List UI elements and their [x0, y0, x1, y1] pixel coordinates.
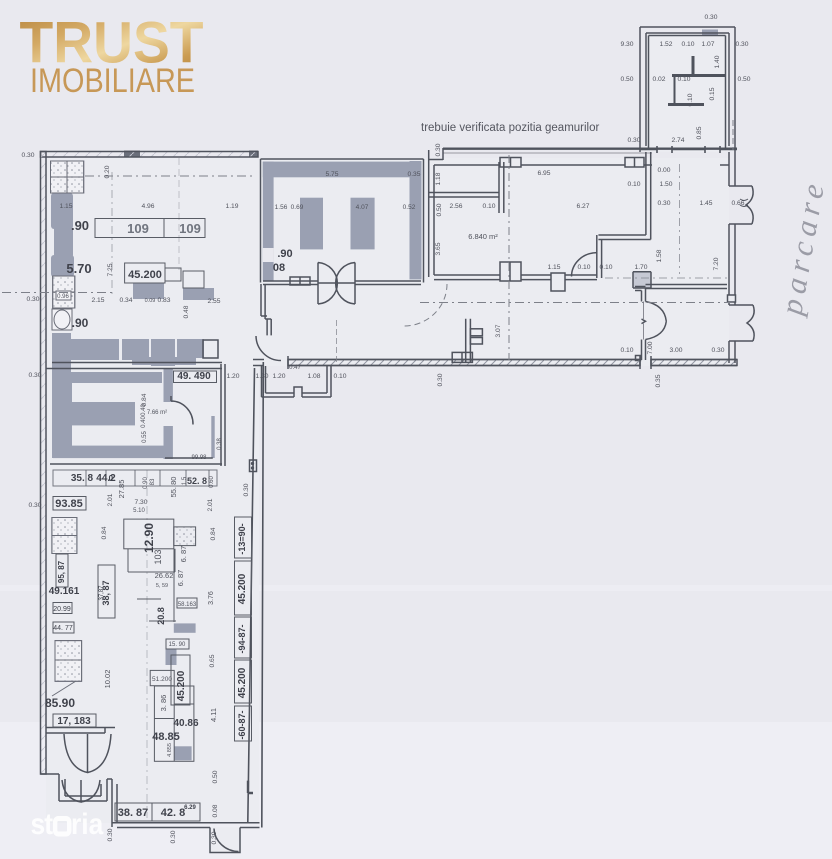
svg-text:0.84: 0.84: [210, 527, 217, 540]
svg-text:0.10: 0.10: [620, 347, 633, 354]
svg-text:12.90: 12.90: [142, 523, 156, 553]
svg-text:4.96: 4.96: [141, 203, 154, 210]
svg-text:15. 90: 15. 90: [169, 642, 186, 648]
svg-text:10.02: 10.02: [103, 670, 112, 689]
svg-text:ria: ria: [71, 806, 104, 840]
svg-text:0.84: 0.84: [101, 526, 108, 539]
svg-text:0.30: 0.30: [735, 41, 748, 48]
svg-text:.90: .90: [72, 316, 89, 330]
svg-text:-60-87-: -60-87-: [237, 710, 247, 739]
svg-text:6.29: 6.29: [184, 805, 196, 811]
svg-text:0.60: 0.60: [209, 476, 215, 488]
svg-text:0.30: 0.30: [211, 831, 218, 844]
svg-text:4.07: 4.07: [356, 204, 369, 211]
svg-text:9.30: 9.30: [620, 41, 633, 48]
svg-text:40.86: 40.86: [173, 718, 198, 729]
svg-text:0.35: 0.35: [655, 374, 662, 387]
svg-text:55. 80: 55. 80: [169, 477, 178, 498]
svg-text:3.65: 3.65: [435, 242, 442, 255]
svg-text:51.200: 51.200: [152, 676, 172, 683]
svg-text:4.855: 4.855: [167, 743, 173, 757]
svg-text:0.30: 0.30: [170, 830, 177, 843]
svg-text:6. 87: 6. 87: [179, 546, 188, 563]
svg-text:0.50: 0.50: [212, 770, 219, 783]
svg-text:83: 83: [150, 478, 156, 485]
svg-text:1.19: 1.19: [225, 203, 238, 210]
svg-text:trebuie verificata pozitia gea: trebuie verificata pozitia geamurilor: [421, 122, 600, 134]
svg-text:1.70: 1.70: [634, 264, 647, 271]
svg-text:0.30: 0.30: [711, 347, 724, 354]
svg-text:0.10: 0.10: [577, 264, 590, 271]
svg-text:44. 77: 44. 77: [53, 625, 73, 632]
svg-text:0.47: 0.47: [289, 365, 301, 371]
svg-text:2.56: 2.56: [449, 203, 462, 210]
svg-text:7.25: 7.25: [107, 263, 114, 276]
svg-text:0.96: 0.96: [57, 294, 69, 300]
svg-text:0.65: 0.65: [209, 654, 216, 667]
svg-text:3.76: 3.76: [208, 591, 215, 605]
svg-text:1.07: 1.07: [701, 41, 714, 48]
svg-text:109: 109: [179, 221, 201, 236]
svg-text:0.50: 0.50: [737, 76, 750, 83]
svg-text:3.00: 3.00: [669, 347, 682, 354]
svg-text:0.35: 0.35: [407, 171, 420, 178]
svg-text:0.30: 0.30: [28, 372, 41, 379]
svg-text:20.99: 20.99: [53, 606, 71, 613]
svg-text:0.30: 0.30: [437, 373, 444, 386]
svg-text:1.15: 1.15: [547, 264, 560, 271]
svg-text:1.30: 1.30: [255, 373, 268, 380]
svg-text:0.: 0.: [109, 474, 116, 483]
svg-text:.90: .90: [71, 218, 89, 233]
svg-text:-13=90-: -13=90-: [237, 523, 247, 554]
svg-text:2.74: 2.74: [671, 137, 684, 144]
svg-text:1.56: 1.56: [275, 204, 288, 211]
svg-text:0.30: 0.30: [657, 200, 670, 207]
svg-text:6.95: 6.95: [537, 170, 550, 177]
svg-text:6. 87: 6. 87: [176, 570, 185, 587]
svg-text:0.50: 0.50: [620, 76, 633, 83]
svg-text:38. 87: 38. 87: [118, 807, 149, 819]
svg-text:0.10: 0.10: [333, 373, 346, 380]
svg-text:45.200: 45.200: [237, 573, 248, 604]
svg-text:3. 86: 3. 86: [159, 695, 168, 712]
svg-text:0.30: 0.30: [627, 137, 640, 144]
svg-text:0.48: 0.48: [183, 305, 190, 318]
svg-text:0.30: 0.30: [21, 152, 34, 159]
svg-text:49.161: 49.161: [49, 586, 80, 597]
svg-text:0.30: 0.30: [26, 296, 39, 303]
svg-text:0.10: 0.10: [681, 41, 694, 48]
svg-text:0.34: 0.34: [119, 297, 132, 304]
svg-text:1.52: 1.52: [659, 41, 672, 48]
svg-text:0.52: 0.52: [403, 204, 416, 211]
svg-text:0.55: 0.55: [142, 431, 148, 443]
svg-text:99.98: 99.98: [191, 455, 207, 461]
svg-text:1.08: 1.08: [307, 373, 320, 380]
svg-text:58.163: 58.163: [178, 602, 197, 608]
svg-text:0.90: 0.90: [143, 477, 149, 489]
svg-text:49. 490: 49. 490: [177, 371, 211, 382]
svg-text:0.10: 0.10: [627, 181, 640, 188]
svg-text:0.30: 0.30: [243, 483, 250, 496]
svg-text:0.20: 0.20: [104, 165, 111, 178]
svg-text:0.02: 0.02: [652, 76, 665, 83]
svg-text:7.00: 7.00: [647, 341, 654, 354]
svg-text:1.45: 1.45: [699, 200, 712, 207]
svg-text:0.30: 0.30: [107, 828, 114, 841]
svg-text:45.200: 45.200: [128, 269, 162, 281]
svg-text:2.01: 2.01: [207, 498, 214, 511]
svg-text:6.27: 6.27: [576, 203, 589, 210]
svg-text:52. 8: 52. 8: [187, 476, 207, 486]
svg-text:0.30: 0.30: [704, 14, 717, 21]
svg-text:08: 08: [273, 262, 285, 274]
svg-text:0.15: 0.15: [709, 87, 716, 100]
svg-text:0.10: 0.10: [677, 76, 690, 83]
svg-text:0.10: 0.10: [687, 93, 694, 106]
svg-text:1.40: 1.40: [714, 55, 721, 68]
svg-text:1.50: 1.50: [659, 181, 672, 188]
svg-text:0.85: 0.85: [696, 126, 703, 139]
svg-text:0.50: 0.50: [436, 203, 443, 216]
svg-text:5, 59: 5, 59: [156, 583, 168, 589]
svg-text:1.15: 1.15: [59, 203, 72, 210]
svg-text:1.18: 1.18: [435, 172, 442, 185]
svg-text:IMOBILIARE: IMOBILIARE: [30, 62, 195, 100]
svg-text:85.90: 85.90: [45, 696, 75, 710]
svg-text:35. 8: 35. 8: [71, 473, 94, 484]
svg-text:2.15: 2.15: [91, 297, 104, 304]
svg-text:0.08: 0.08: [212, 804, 219, 817]
svg-text:st: st: [31, 806, 54, 840]
svg-text:109: 109: [127, 221, 149, 236]
svg-text:-94-87-: -94-87-: [237, 624, 247, 653]
svg-text:45.200: 45.200: [237, 667, 248, 698]
svg-text:0.10: 0.10: [599, 264, 612, 271]
svg-text:42. 8: 42. 8: [161, 807, 185, 819]
svg-text:1.58: 1.58: [656, 249, 663, 262]
svg-text:0.38: 0.38: [217, 438, 223, 450]
svg-text:0.83: 0.83: [157, 297, 170, 304]
svg-text:1.20: 1.20: [226, 373, 239, 380]
svg-text:48.85: 48.85: [152, 731, 180, 743]
svg-text:0.09: 0.09: [145, 298, 156, 304]
svg-text:4.11: 4.11: [209, 708, 218, 722]
svg-text:17, 183: 17, 183: [57, 716, 91, 727]
svg-text:0.30: 0.30: [435, 143, 442, 156]
svg-text:2.55: 2.55: [207, 298, 220, 305]
svg-text:95, 87: 95, 87: [57, 560, 66, 583]
svg-text:0.10: 0.10: [482, 203, 495, 210]
svg-text:7.66 m²: 7.66 m²: [147, 410, 167, 416]
svg-text:7.30: 7.30: [134, 499, 147, 506]
svg-text:0.69: 0.69: [291, 204, 304, 211]
svg-text:0.40: 0.40: [141, 416, 147, 428]
svg-text:5.75: 5.75: [325, 171, 338, 178]
svg-text:6.840 m²: 6.840 m²: [468, 232, 498, 241]
svg-text:3.07: 3.07: [495, 324, 502, 337]
svg-text:37,87: 37,87: [99, 585, 105, 601]
svg-text:5.10: 5.10: [133, 508, 145, 514]
svg-text:93.85: 93.85: [55, 498, 83, 510]
svg-text:20.8: 20.8: [156, 607, 166, 625]
svg-text:0.00: 0.00: [657, 167, 670, 174]
svg-text:26.62: 26.62: [155, 571, 174, 580]
svg-text:27.85: 27.85: [117, 480, 126, 499]
svg-text:45.200: 45.200: [176, 670, 187, 701]
svg-text:7.20: 7.20: [713, 257, 720, 270]
svg-text:.90: .90: [277, 248, 292, 260]
svg-text:5.70: 5.70: [66, 261, 91, 276]
svg-text:1.20: 1.20: [272, 373, 285, 380]
svg-text:0.30: 0.30: [28, 502, 41, 509]
svg-text:0.66: 0.66: [731, 200, 744, 207]
svg-text:2.01: 2.01: [107, 493, 114, 506]
